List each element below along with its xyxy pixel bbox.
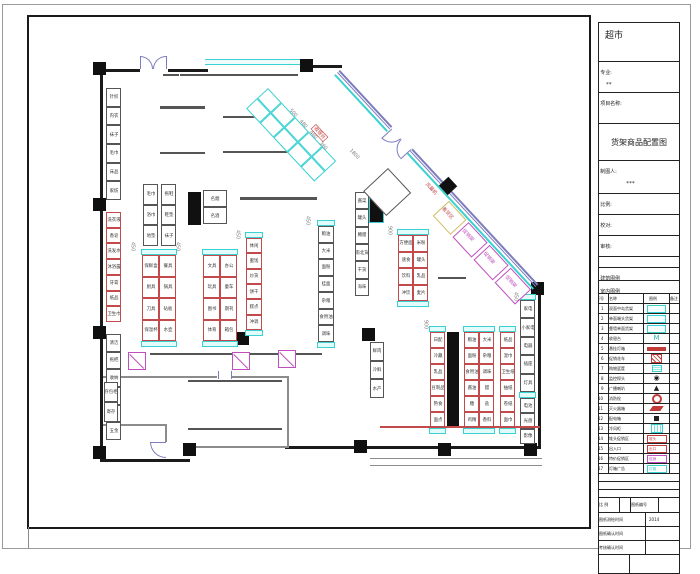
legend-symbol-sq <box>654 416 659 421</box>
legend-empty-row <box>599 474 679 482</box>
shelf-cell: 床品 <box>106 163 121 182</box>
legend-cell: 12 <box>599 414 609 423</box>
shelf-cell: 抽纸 <box>500 380 515 396</box>
shelf-label: 地垫 <box>146 233 155 237</box>
legend-cell: 1 <box>599 304 609 313</box>
legend-cell <box>644 314 670 323</box>
shelf-cell: 保温杯 <box>142 320 159 342</box>
shelf-cell: 电器 <box>520 337 535 355</box>
wall <box>188 446 288 448</box>
structural-column <box>93 198 106 211</box>
legend-cell: 冷风柜 <box>609 424 644 433</box>
structural-column <box>183 443 196 456</box>
shelf-cell: 家电 <box>520 300 535 318</box>
major-value: ** <box>599 81 655 87</box>
shelf-label: 香料 <box>482 418 491 422</box>
shelf-label: 袜子 <box>164 233 173 237</box>
shelf-run: 粮油大米面粉挂面杂粮食用油调味 <box>318 226 334 342</box>
shelf-run: 休闲蜜饯炒货饼干糕点冲调 <box>246 238 262 330</box>
legend-row: 12配电箱 <box>599 414 679 424</box>
footer-cell <box>630 555 679 573</box>
shelf-label: 饮料 <box>401 274 410 278</box>
shelf-label: 膨化食品 <box>215 74 233 76</box>
shelf-label: 面点 <box>433 418 442 422</box>
shelf-cell: 醋 <box>479 380 494 396</box>
legend-symbol-boxr: 堆头 <box>647 435 667 443</box>
shelf-label: 电池 <box>523 403 532 407</box>
shelf-label: 糕点 <box>250 305 259 309</box>
shelf-label: 水壶 <box>163 328 172 332</box>
shelf-label: 醋 <box>484 386 488 390</box>
shelf-cell: 杂粮 <box>479 348 494 364</box>
shelf-label: 杂粮 <box>322 298 331 302</box>
legend-cell: 配电箱 <box>609 414 644 423</box>
shelf-label: 挂面 <box>322 282 331 286</box>
wall <box>168 69 208 72</box>
shelf-label: 促销区 <box>453 426 466 428</box>
shelf-label: 休闲食品 <box>186 74 204 76</box>
store-name-cell: 超市 <box>599 23 679 62</box>
promo-box-label: 促销架 <box>504 275 517 289</box>
shelf-cell: 促销区 <box>380 426 433 428</box>
legend-row: 10消防栓 <box>599 394 679 404</box>
structural-column <box>438 443 451 456</box>
wall <box>538 285 541 449</box>
shelf-cell: 洗发水 <box>106 243 121 259</box>
shelf-cell: 仓储货架 <box>188 428 235 430</box>
shelf-label: 洗化 <box>228 151 237 153</box>
shelf-label: 文具 <box>207 264 216 268</box>
dimension-text: 900 <box>423 320 428 329</box>
structural-column <box>93 326 106 339</box>
scale-cell: 比例: <box>599 194 679 215</box>
shelf-endcap <box>463 326 495 332</box>
dimension-text: 450 <box>130 242 135 251</box>
wall <box>205 59 307 65</box>
shelf-cell: 水饮 <box>291 198 317 200</box>
shelf-label: 酱油 <box>467 386 476 390</box>
shelf-run: 名烟名酒 <box>203 190 227 224</box>
footer-row: 图纸确认时间 <box>599 527 679 541</box>
shelf-cell: 麦片 <box>413 285 428 302</box>
shelf-label: 冷藏 <box>433 354 442 358</box>
legend-cell <box>670 354 679 363</box>
shelf-label: 家纺 <box>109 188 118 192</box>
shelf-cell: 洗衣液 <box>106 212 121 228</box>
shelf-label: 糖 <box>469 402 473 406</box>
structural-column <box>524 443 537 456</box>
legend-row: 8监控探头◉ <box>599 374 679 384</box>
interior-legend-label: 室内图例 <box>599 288 620 294</box>
project-label: 项目名称: <box>599 100 622 106</box>
footer-cell: 考核确认时间 <box>599 541 646 554</box>
shelf-label: 仓储货架 <box>250 380 268 382</box>
legend-header-cell: 名称 <box>609 294 644 303</box>
shelf-label: 罐头 <box>416 258 425 262</box>
wall <box>100 459 190 462</box>
shelf-label: 毛巾 <box>146 192 155 196</box>
shelf-label: 水具 <box>297 353 306 355</box>
footer-cell <box>599 555 630 573</box>
legend-cell: 促销花车 <box>609 354 644 363</box>
shelf-cell: 乳品 <box>430 364 445 380</box>
shelf-label: 面巾 <box>503 418 512 422</box>
footer-row: 考核确认时间 <box>599 541 679 555</box>
wall <box>165 424 167 442</box>
shelf-cell: 瓷器 <box>191 353 232 355</box>
shelf-cell: 餐具 <box>159 255 176 277</box>
legend-cell: 3 <box>599 324 609 333</box>
shelf-label: 抽纸 <box>503 386 512 390</box>
shelf-label: 粮油 <box>322 232 331 236</box>
check-cell: 校对: <box>599 215 679 236</box>
shelf-cell: 毛巾 <box>143 184 158 205</box>
shelf-label: 面粉 <box>467 354 476 358</box>
shelf-cell: 米粉 <box>413 235 428 252</box>
legend-row: 3靠墙单面货架 <box>599 324 679 334</box>
shelf-cell: 仓储货架 <box>188 380 235 382</box>
shelf-endcap <box>245 330 263 336</box>
shelf-label: 乳品 <box>416 274 425 278</box>
shelf-label: 文具 <box>228 116 237 118</box>
shelf-cell: 电池 <box>520 398 535 413</box>
floor-plan: 针织内衣袜子毛巾床品家纺洗衣液香皂洗发水沐浴露牙膏纸品卫生巾清洁拖把收纳衣架雨具… <box>0 0 700 555</box>
shelf-cell: 方便面 <box>398 235 413 252</box>
shelf-cell: 蜜饯 <box>246 253 262 268</box>
shelf-label: 名酒 <box>211 213 220 217</box>
shelf-label: 床品 <box>109 170 118 174</box>
shelf-label: 促销区 <box>400 426 413 428</box>
shelf-label: 办公 <box>224 264 233 268</box>
shelf-label: 糖果蜜饯 <box>274 74 292 76</box>
shelf-cell: 调味 <box>318 325 334 342</box>
shelf-label: 牙膏 <box>109 280 118 284</box>
shelf-cell: 内衣 <box>106 107 121 126</box>
shelf-label: 瓷器 <box>207 353 216 355</box>
shelf-label: 图书 <box>207 307 216 311</box>
shelf-label: 洗衣液 <box>107 218 120 222</box>
dimension-text: 1800 <box>348 148 360 160</box>
major-cell: 专业: ** <box>599 62 679 93</box>
legend-cell: 促销 <box>644 454 670 463</box>
footer-cell: 2014 <box>646 513 679 526</box>
wall <box>370 465 542 466</box>
door-arc <box>150 442 166 458</box>
review-cell: 审核: <box>599 236 679 257</box>
shelf-run: 日配冷藏乳品豆制品熟食面点 <box>430 332 445 428</box>
shelf-cell: 水产 <box>370 379 384 398</box>
shelf-label: 针织 <box>109 95 118 99</box>
legend-cell: 灯箱广告 <box>609 464 644 473</box>
service-counter <box>188 192 201 225</box>
shelf-label: 干货 <box>358 268 367 272</box>
shelf-label: 米粉 <box>416 241 425 245</box>
legend-row: 16特价促销区促销 <box>599 454 679 464</box>
shelf-run: 仓储货架仓储货架 <box>188 428 282 429</box>
footer-cell <box>646 541 679 554</box>
shelf-label: 日配 <box>433 338 442 342</box>
shelf-label: 厨具 <box>146 285 155 289</box>
shelf-run: 称重包装 <box>438 277 466 278</box>
legend-cell: 悬挂灯箱 <box>609 344 644 353</box>
shelf-cell: 饼干糕点 <box>239 74 269 76</box>
shelf-cell: 箱包 <box>220 320 237 342</box>
legend-row: 2单面端头货架 <box>599 314 679 324</box>
shelf-cell: 糕点 <box>246 299 262 314</box>
shelf-run <box>278 350 296 368</box>
shelf-cell: 牙膏 <box>106 275 121 291</box>
shelf-label: 光盘 <box>523 419 532 423</box>
shelf-label: 内衣 <box>109 114 118 118</box>
shelf-endcap <box>429 428 446 434</box>
shelf-label: 盐 <box>484 402 488 406</box>
shelf-run: 毛巾浴巾地垫 <box>143 184 158 246</box>
wall <box>287 376 289 448</box>
shelf-label: 砧板 <box>163 307 172 311</box>
shelf-cell: 百货 012 <box>160 152 205 154</box>
legend-cell: 收银台 <box>609 334 644 343</box>
shelf-cell: 水壶 <box>159 320 176 342</box>
legend-symbol-chatch <box>651 424 663 433</box>
footer-cell <box>646 527 679 540</box>
legend-cell <box>644 354 670 363</box>
wall <box>370 458 542 459</box>
shelf-cell: 休闲食品 <box>180 74 210 76</box>
shelf-run: 粮油大米面粉杂粮食用油调味酱油醋糖盐鸡精香料 <box>464 332 494 428</box>
drafter-label: 制图人: <box>599 168 617 174</box>
shelf-label: 锅具 <box>166 353 175 355</box>
shelf-run: 方便面米粉速食罐头饮料乳品冲饮麦片 <box>398 235 428 301</box>
wall <box>100 69 140 72</box>
legend-cell <box>670 384 679 393</box>
shelf-label: 炊具 <box>256 353 265 355</box>
shelf-run: 保鲜盒餐具厨具锅具刀具砧板保温杯水壶 <box>142 255 176 341</box>
shelf-cell: 清洁 <box>106 334 121 352</box>
shelf-run <box>128 352 146 370</box>
shelf-label: 刀具 <box>146 307 155 311</box>
shelf-cell: 熟食 <box>430 396 445 412</box>
legend-row: 7购物篮筐 <box>599 364 679 374</box>
shelf-run: 服务 <box>163 74 179 75</box>
shelf-endcap <box>499 428 516 434</box>
legend-row: 14堆头促销区堆头 <box>599 434 679 444</box>
legend-row: 6促销花车 <box>599 354 679 364</box>
shelf-label: 蜜饯 <box>250 259 259 263</box>
shelf-run: 百货 012 <box>160 152 205 153</box>
wall <box>28 527 29 548</box>
door-leaf <box>140 56 141 69</box>
shelf-cell: 锅具 <box>150 353 191 355</box>
legend-cell: 16 <box>599 454 609 463</box>
shelf-cell: 挂面 <box>318 276 334 293</box>
legend-row: 13冷风柜 <box>599 424 679 434</box>
legend-symbol-cam: ◉ <box>653 375 659 382</box>
shelf-cell: 针织 <box>106 88 121 107</box>
shelf-label: 乳品 <box>274 198 283 200</box>
shelf-cell: 浴巾 <box>143 205 158 226</box>
shelf-label: 保鲜盒 <box>144 264 157 268</box>
shelf-cell: 冷鲜 <box>370 361 384 380</box>
legend-cell: 15 <box>599 444 609 453</box>
shelf-cell: 面粉 <box>318 259 334 276</box>
shelf-cell: 膨化食品 <box>210 74 240 76</box>
shelf-label: 调味 <box>322 332 331 336</box>
shelf-cell: 冷藏 <box>430 348 445 364</box>
shelf-label: 箱包 <box>224 328 233 332</box>
shelf-run: 针织内衣袜子毛巾床品家纺 <box>106 88 121 200</box>
shelf-label: 饼干糕点 <box>245 74 263 76</box>
legend-cell <box>670 304 679 313</box>
shelf-cell: 玩具 <box>203 277 220 299</box>
legend-cell: 13 <box>599 424 609 433</box>
shelf-label: 包装 <box>455 277 464 279</box>
legend-cell: 9 <box>599 384 609 393</box>
shelf-cell: 促销区 <box>433 426 486 428</box>
shelf-endcap <box>463 428 495 434</box>
legend-cell: 2 <box>599 314 609 323</box>
legend-symbol-basket <box>652 365 662 372</box>
legend-header-cell: 备注 <box>670 294 679 303</box>
legend-symbol-m: M <box>653 335 659 342</box>
shelf-cell: 图书 <box>203 298 220 320</box>
shelf-label: 卫生巾 <box>107 312 120 316</box>
shelf-label: 寄存 <box>107 410 116 414</box>
legend-symbol-redx <box>651 354 662 363</box>
legend-cell <box>670 404 679 413</box>
footer-cell <box>659 498 679 512</box>
shelf-cell: 纸品 <box>242 151 261 153</box>
legend-cell <box>670 444 679 453</box>
shelf-cell: 文具 <box>203 255 220 277</box>
shelf-label: 豆制品 <box>431 386 444 390</box>
shelf-label: 灯具 <box>523 381 532 385</box>
shelf-label: 拖把 <box>109 358 118 362</box>
legend-cell: 双面中岛货架 <box>609 304 644 313</box>
shelf-label: 餐具 <box>163 264 172 268</box>
shelf-label: 洗发水 <box>107 249 120 253</box>
shelf-label: 冲调 <box>250 320 259 324</box>
shelf-cell: 南北货 <box>355 244 369 261</box>
shelf-label: 918 百货 <box>184 107 203 109</box>
shelf-cell: 炒货 <box>246 269 262 284</box>
shelf-run: 纸品湿巾卫生纸抽纸卷纸面巾 <box>500 332 515 428</box>
shelf-run: 存包柜寄存 <box>104 382 118 422</box>
shelf-cell: 冲饮 <box>398 285 413 302</box>
shelf-run <box>232 352 250 370</box>
shelf-label: 五金 <box>109 429 118 433</box>
legend-cell: 监控探头 <box>609 374 644 383</box>
shelf-label: 卷纸 <box>503 402 512 406</box>
shelf-label: 名烟 <box>211 196 220 200</box>
legend-cell <box>644 404 670 413</box>
shelf-cell: 五金 <box>106 422 121 440</box>
legend-row: 5悬挂灯箱 <box>599 344 679 354</box>
dimension-text: 450 <box>175 242 180 251</box>
shelf-endcap <box>397 229 429 235</box>
shelf-endcap <box>202 341 238 347</box>
legend-cell: 单面端头货架 <box>609 314 644 323</box>
dimension-text: 450 <box>235 230 240 239</box>
shelf-endcap <box>317 342 335 348</box>
shelf-label: 家电 <box>523 307 532 311</box>
shelf-label: 麦片 <box>416 291 425 295</box>
shelf-cell: 盐 <box>479 396 494 412</box>
shelf-label: 影像 <box>523 434 532 438</box>
wall <box>285 446 541 449</box>
legend-cell: 出口 <box>644 444 670 453</box>
shelf-cell: 罐头 <box>413 252 428 269</box>
shelf-cell: 糖果蜜饯 <box>269 74 299 76</box>
legend-symbol-bar <box>647 347 666 351</box>
shelf-cell: 文具 <box>223 116 242 118</box>
shelf-cell: 腌腊 <box>355 227 369 244</box>
legend-header-cell: 图例 <box>644 294 670 303</box>
shelf-label: 纸品 <box>503 338 512 342</box>
legend-row: 4收银台M <box>599 334 679 344</box>
legend-cell <box>670 424 679 433</box>
shelf-label: 饼干 <box>250 289 259 293</box>
shelf-cell: 仓储货架 <box>235 428 282 430</box>
shelf-endcap <box>245 232 263 238</box>
shelf-cell: 卫生巾 <box>106 306 121 322</box>
shelf-cell: 917 百货 <box>160 107 183 109</box>
legend-cell <box>670 414 679 423</box>
shelf-label: 调味 <box>482 370 491 374</box>
shelf-endcap <box>202 249 238 255</box>
shelf-cell: 冲调 <box>246 315 262 330</box>
promo-box-label: 促销架 <box>461 228 474 242</box>
footer-cell: 图纸确认时间 <box>599 527 646 540</box>
legend-cell <box>670 314 679 323</box>
legend-symbol-dome: ▲ <box>654 385 659 392</box>
shelf-cell: 锅具 <box>159 277 176 299</box>
legend-cell <box>670 374 679 383</box>
shelf-label: 炒货 <box>250 274 259 278</box>
legend-cell: 7 <box>599 364 609 373</box>
scale-label: 比例: <box>599 201 612 207</box>
shelf-label: 杂粮 <box>482 354 491 358</box>
legend-cell <box>644 324 670 333</box>
shelf-cell: 袜子 <box>106 125 121 144</box>
legend-cell: 5 <box>599 344 609 353</box>
shelf-run: 文具办公玩具童车图书期刊体育箱包 <box>203 255 237 341</box>
legend-cell: M <box>644 334 670 343</box>
shelf-label: 917 百货 <box>162 107 181 109</box>
footer-row: 图纸测绘时间2014 <box>599 513 679 527</box>
shelf-cell: 名烟 <box>203 190 227 207</box>
shelf-cell: 办公 <box>220 255 237 277</box>
wall <box>100 69 103 462</box>
shelf-endcap <box>429 326 446 332</box>
shelf-cell: 寄存 <box>104 402 118 422</box>
shelf-label: 拖鞋 <box>164 192 173 196</box>
shelf-label: 乳品 <box>433 370 442 374</box>
shelf-cell: 名酒 <box>203 207 227 224</box>
shelf-cell: 休闲 <box>246 238 262 253</box>
shelf-label: 鲜肉 <box>373 349 382 353</box>
legend-cell <box>670 434 679 443</box>
shelf-cell: 拖鞋 <box>161 184 176 205</box>
shelf-cell: 袜子 <box>161 225 176 246</box>
shelf-cell: 包装 <box>452 277 466 279</box>
legend-cell: 14 <box>599 434 609 443</box>
shelf-cell: 仓储货架 <box>235 380 282 382</box>
shelf-run: 白酒红酒啤酒饮料乳品水饮 <box>240 197 317 198</box>
legend-cell: 灯箱 <box>644 464 670 473</box>
store-name: 超市 <box>599 24 623 41</box>
shelf-cell: 香皂 <box>106 228 121 244</box>
shelf-label: 毛巾 <box>109 151 118 155</box>
